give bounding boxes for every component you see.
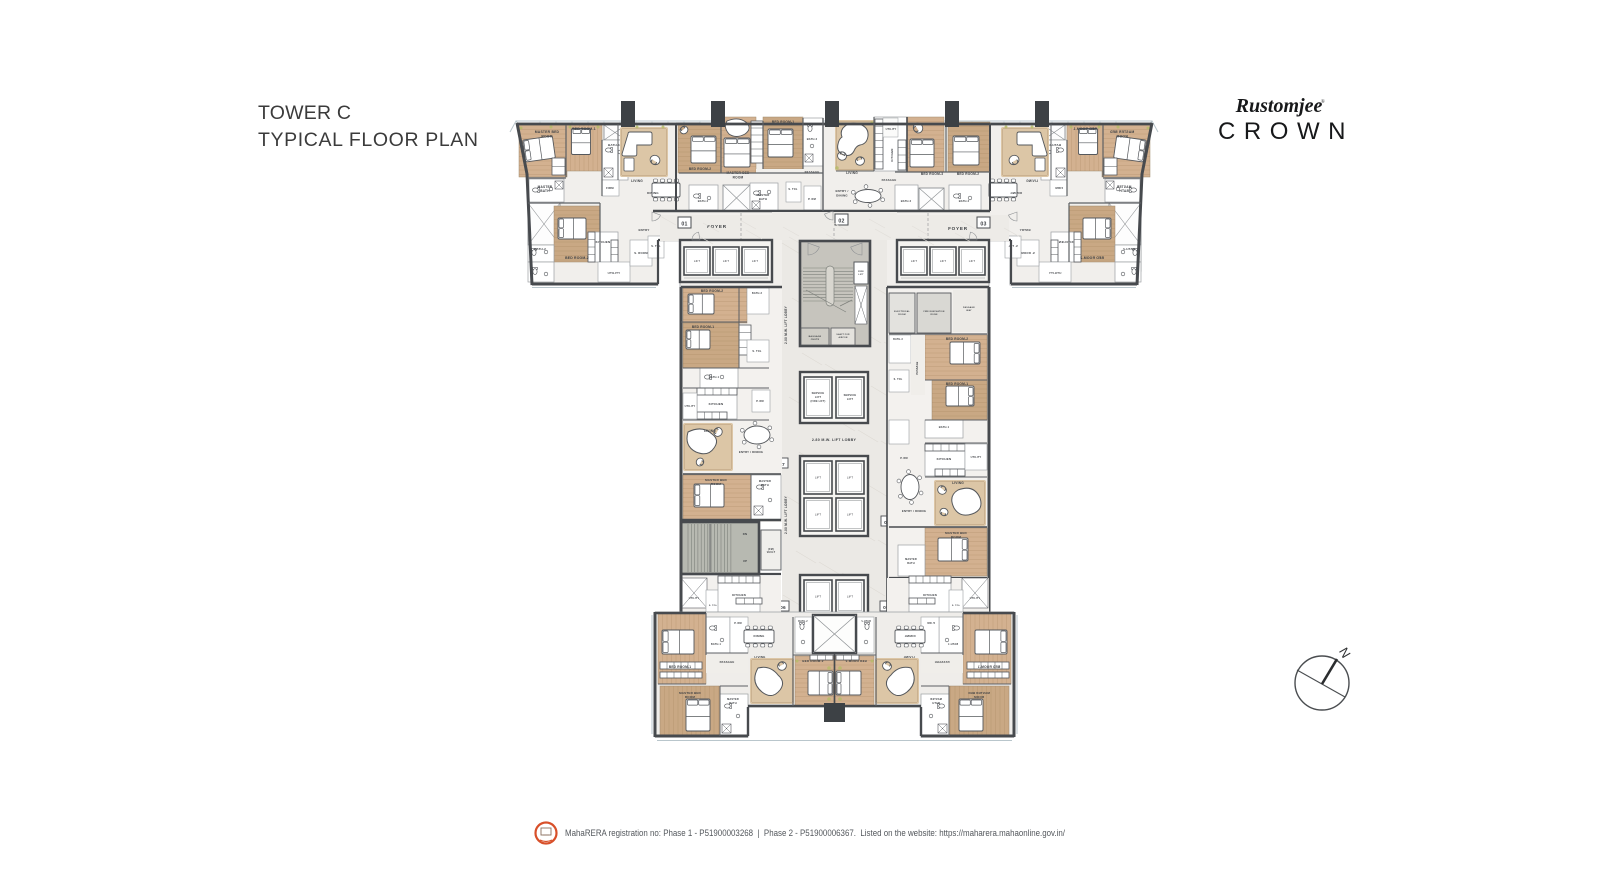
svg-text:BED ROOM-2: BED ROOM-2 xyxy=(802,659,823,663)
svg-text:KITCHEN: KITCHEN xyxy=(890,149,894,162)
svg-text:BATH-1: BATH-1 xyxy=(709,375,720,379)
svg-text:BATH-2: BATH-2 xyxy=(698,199,709,203)
svg-text:PASSAGE: PASSAGE xyxy=(882,178,897,182)
svg-text:S. TOL: S. TOL xyxy=(894,378,903,381)
svg-text:ELECTRICAL: ELECTRICAL xyxy=(894,310,910,313)
svg-text:SHAFT FOR: SHAFT FOR xyxy=(836,333,850,336)
svg-text:FIRE: FIRE xyxy=(858,271,864,273)
svg-text:ENTRY / DINING: ENTRY / DINING xyxy=(739,450,763,454)
svg-text:LIFT: LIFT xyxy=(815,513,821,517)
svg-text:ENTRY /: ENTRY / xyxy=(835,189,848,193)
svg-text:P. RM: P. RM xyxy=(756,400,764,403)
svg-text:KITCHEN: KITCHEN xyxy=(732,593,746,597)
svg-text:PASSAGE: PASSAGE xyxy=(916,361,919,374)
svg-text:LIFT: LIFT xyxy=(940,259,946,263)
svg-text:LIFT: LIFT xyxy=(847,476,853,480)
svg-text:MASTER: MASTER xyxy=(759,479,771,483)
svg-text:2.00 M.W. LIFT LOBBY: 2.00 M.W. LIFT LOBBY xyxy=(784,495,788,534)
svg-text:FOYER: FOYER xyxy=(948,226,968,231)
svg-text:BED ROOM-2: BED ROOM-2 xyxy=(701,289,723,293)
svg-text:MASTER: MASTER xyxy=(905,558,917,561)
svg-text:BATH: BATH xyxy=(907,562,915,565)
svg-text:LIFT: LIFT xyxy=(969,259,975,263)
svg-text:ROOM: ROOM xyxy=(711,482,721,486)
svg-text:LIFT: LIFT xyxy=(752,259,758,263)
svg-text:LIFT: LIFT xyxy=(723,259,729,263)
svg-text:FOYER: FOYER xyxy=(707,224,727,229)
svg-text:LIVING: LIVING xyxy=(631,179,643,183)
svg-text:BATH: BATH xyxy=(761,483,769,487)
svg-text:MASTER BED: MASTER BED xyxy=(535,130,560,134)
svg-text:BED ROOM-2: BED ROOM-2 xyxy=(946,337,968,341)
svg-text:ROOM: ROOM xyxy=(898,314,906,316)
svg-text:P. RM: P. RM xyxy=(734,622,742,625)
svg-text:BATH-2: BATH-2 xyxy=(959,199,970,203)
svg-text:SERVICE: SERVICE xyxy=(844,393,857,397)
svg-text:S. TOL: S. TOL xyxy=(752,350,761,353)
svg-text:2.80 M.W. LIFT LOBBY: 2.80 M.W. LIFT LOBBY xyxy=(812,438,857,442)
svg-text:VAULT: VAULT xyxy=(767,551,776,554)
svg-text:LIFT: LIFT xyxy=(815,595,821,599)
svg-text:UP: UP xyxy=(743,559,747,563)
svg-text:BATH-2: BATH-2 xyxy=(807,137,818,141)
svg-text:FIRM: FIRM xyxy=(606,186,614,190)
svg-text:UTILITY: UTILITY xyxy=(685,405,696,408)
svg-text:S. TOL: S. TOL xyxy=(651,244,661,248)
svg-text:DN: DN xyxy=(743,532,747,536)
svg-text:LIFT: LIFT xyxy=(847,595,853,599)
svg-text:BATH-2: BATH-2 xyxy=(534,247,546,251)
svg-text:P. RM: P. RM xyxy=(900,457,908,460)
svg-text:01: 01 xyxy=(681,222,687,228)
svg-text:LIVING: LIVING xyxy=(846,171,858,175)
svg-text:BED ROOM-1: BED ROOM-1 xyxy=(572,127,596,131)
svg-text:BAGGAGE: BAGGAGE xyxy=(809,335,822,338)
svg-text:ROOM: ROOM xyxy=(541,135,552,139)
svg-text:BATH-1: BATH-1 xyxy=(711,643,722,646)
svg-text:S. TOL: S. TOL xyxy=(952,605,961,607)
svg-text:KITCHEN: KITCHEN xyxy=(937,457,952,461)
svg-text:ENTRY: ENTRY xyxy=(638,228,649,232)
svg-text:BED ROOM-2: BED ROOM-2 xyxy=(689,167,711,171)
svg-text:LIFT: LIFT xyxy=(694,259,700,263)
svg-text:BATH: BATH xyxy=(729,702,737,705)
svg-text:LIFT: LIFT xyxy=(815,476,821,480)
svg-text:UTILITY: UTILITY xyxy=(689,597,700,600)
svg-text:BED ROOM-3: BED ROOM-3 xyxy=(921,172,943,176)
svg-text:LIVING: LIVING xyxy=(704,429,716,433)
svg-text:BATH: BATH xyxy=(759,197,767,201)
svg-text:LIFT: LIFT xyxy=(847,513,853,517)
svg-text:(FIRE LIFT): (FIRE LIFT) xyxy=(811,400,826,403)
svg-text:06: 06 xyxy=(780,605,786,611)
svg-text:FIRE EVACUATION: FIRE EVACUATION xyxy=(923,310,944,313)
svg-text:CROWN: CROWN xyxy=(1218,118,1353,145)
svg-text:UTILITY: UTILITY xyxy=(971,456,982,459)
svg-text:KITCHEN: KITCHEN xyxy=(596,240,611,244)
svg-text:TOWER C: TOWER C xyxy=(258,102,353,124)
svg-text:BATH-3: BATH-3 xyxy=(752,292,763,295)
svg-text:BED ROOM-2: BED ROOM-2 xyxy=(957,172,979,176)
svg-text:BED ROOM-1: BED ROOM-1 xyxy=(669,665,691,669)
svg-text:LIFT: LIFT xyxy=(911,259,917,263)
svg-text:BED ROOM-1: BED ROOM-1 xyxy=(946,382,968,386)
svg-text:®: ® xyxy=(1321,99,1325,105)
svg-text:LIFT: LIFT xyxy=(858,274,864,276)
svg-text:BATH-3: BATH-3 xyxy=(893,338,903,341)
svg-text:UTILITY: UTILITY xyxy=(608,271,621,275)
svg-text:03: 03 xyxy=(980,222,986,228)
svg-text:BATH-2: BATH-2 xyxy=(798,620,808,623)
svg-text:DINING: DINING xyxy=(647,191,659,195)
svg-text:S. ROOM: S. ROOM xyxy=(634,251,648,255)
svg-text:S. TOL: S. TOL xyxy=(709,605,718,607)
svg-text:02: 02 xyxy=(838,219,844,225)
svg-text:2.00 M.W. LIFT LOBBY: 2.00 M.W. LIFT LOBBY xyxy=(784,305,788,344)
svg-text:UTILITY: UTILITY xyxy=(970,597,981,600)
svg-text:PASSAGE: PASSAGE xyxy=(963,306,975,309)
svg-text:BATH-2: BATH-2 xyxy=(901,199,912,203)
svg-text:P. RM: P. RM xyxy=(808,197,816,201)
svg-text:BED ROOM-1: BED ROOM-1 xyxy=(692,325,714,329)
svg-text:ROOM: ROOM xyxy=(930,314,937,316)
svg-text:LIFT: LIFT xyxy=(847,397,853,401)
svg-text:BED ROOM-2: BED ROOM-2 xyxy=(565,256,589,260)
svg-text:ROOM: ROOM xyxy=(733,176,744,180)
svg-text:AIRCON: AIRCON xyxy=(838,336,847,339)
svg-text:BATH: BATH xyxy=(540,189,550,193)
svg-text:ENTRY / DINING: ENTRY / DINING xyxy=(902,509,926,513)
svg-text:WAY: WAY xyxy=(966,309,972,312)
svg-text:MahaRERA registration no: Phas: MahaRERA registration no: Phase 1 - P519… xyxy=(565,828,1065,839)
svg-text:UTILITY: UTILITY xyxy=(886,128,897,131)
svg-text:LIFT: LIFT xyxy=(815,395,821,399)
svg-text:PASSAGE: PASSAGE xyxy=(720,660,735,664)
svg-text:LIVING: LIVING xyxy=(952,481,964,485)
svg-text:ROOM: ROOM xyxy=(951,535,961,539)
svg-text:DINING: DINING xyxy=(836,194,848,198)
svg-text:KITCHEN: KITCHEN xyxy=(923,593,937,597)
svg-text:SERVICE: SERVICE xyxy=(812,391,825,395)
svg-text:S. TOL: S. TOL xyxy=(788,188,797,191)
svg-text:DINING: DINING xyxy=(754,634,765,638)
svg-text:LIVING: LIVING xyxy=(754,655,766,659)
svg-text:MASTER: MASTER xyxy=(727,698,739,701)
svg-text:BATH-1: BATH-1 xyxy=(939,425,950,429)
svg-text:TYPICAL FLOOR PLAN: TYPICAL FLOOR PLAN xyxy=(258,129,480,151)
svg-text:Rustomjee: Rustomjee xyxy=(1235,95,1323,117)
svg-text:KITCHEN: KITCHEN xyxy=(709,402,724,406)
svg-text:ROOM: ROOM xyxy=(685,695,695,699)
svg-text:CHUTE: CHUTE xyxy=(811,339,820,341)
